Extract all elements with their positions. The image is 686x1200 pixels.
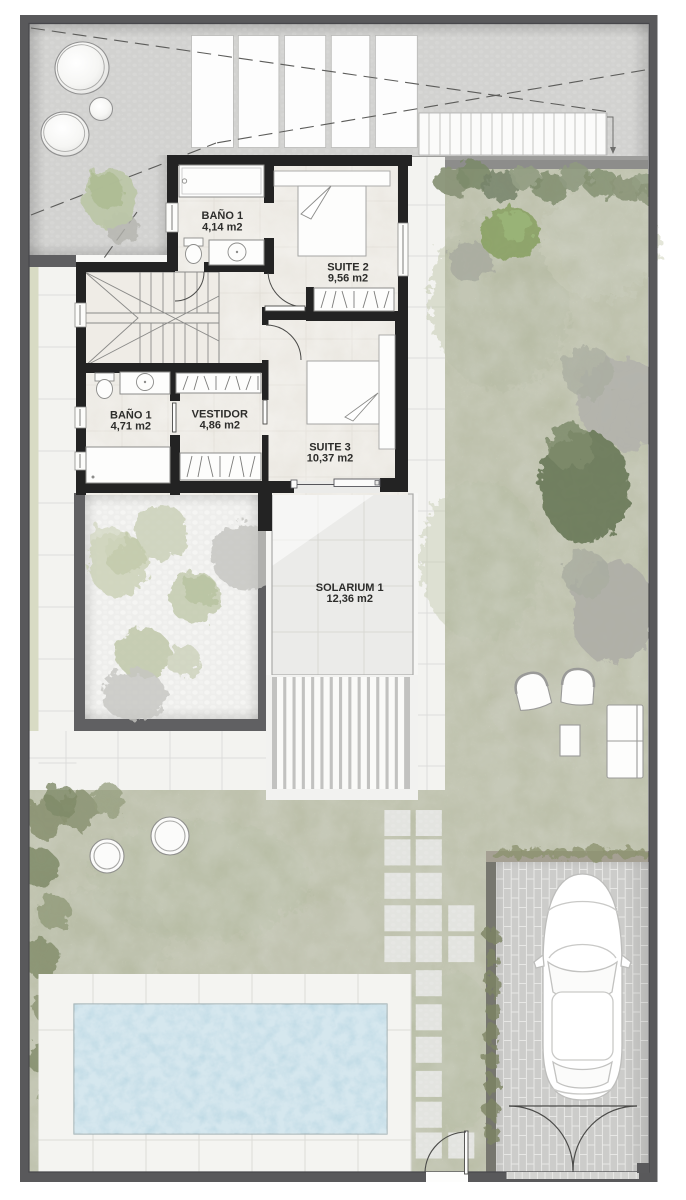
svg-text:9,56 m2: 9,56 m2 [328,273,368,285]
svg-text:SOLARIUM 1: SOLARIUM 1 [316,582,384,594]
svg-text:VESTIDOR: VESTIDOR [192,408,248,420]
svg-text:4,71 m2: 4,71 m2 [111,421,151,433]
svg-text:4,86 m2: 4,86 m2 [200,420,240,432]
svg-text:10,37 m2: 10,37 m2 [307,453,353,465]
svg-text:SUITE 3: SUITE 3 [309,441,351,453]
svg-text:4,14 m2: 4,14 m2 [202,221,242,233]
svg-text:BAÑO 1: BAÑO 1 [202,209,244,222]
svg-text:12,36 m2: 12,36 m2 [326,593,372,605]
svg-text:SUITE 2: SUITE 2 [327,261,369,273]
svg-text:BAÑO 1: BAÑO 1 [110,408,152,421]
